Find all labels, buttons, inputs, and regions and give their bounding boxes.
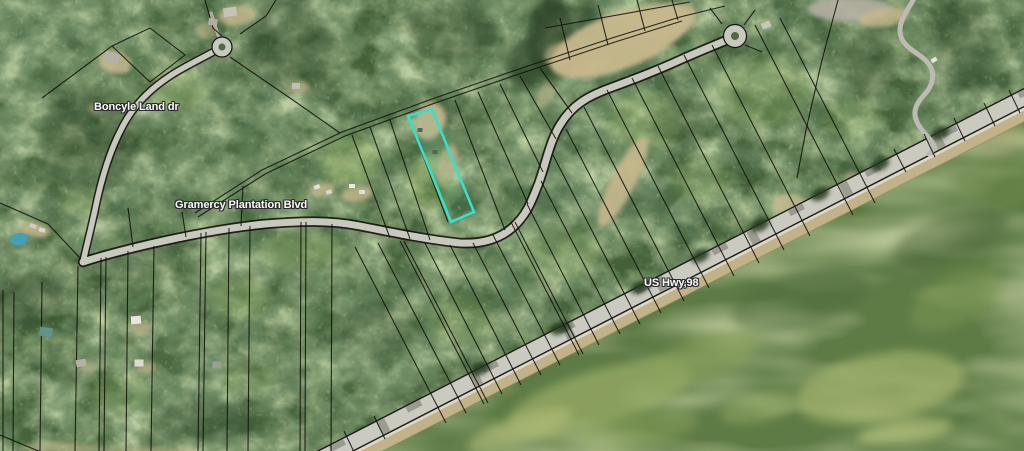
building [359, 190, 365, 194]
building [223, 7, 237, 18]
building [213, 362, 222, 369]
tree-shadow-patch [145, 400, 255, 444]
tree-shadow-patch [650, 96, 710, 144]
building [131, 316, 142, 325]
building [292, 83, 300, 89]
satellite-map[interactable] [0, 0, 1024, 451]
grass-patch [717, 58, 813, 126]
tree-shadow-patch [844, 24, 896, 100]
grass-patch [520, 226, 600, 278]
building [135, 360, 144, 367]
building [39, 327, 53, 338]
tree-shadow-patch [248, 0, 332, 93]
grass-patch [428, 298, 496, 346]
grass-patch [210, 280, 270, 320]
tree-shadow-patch [405, 0, 495, 60]
grass-patch [222, 364, 278, 396]
sand-clearing [88, 103, 102, 113]
grass-patch [820, 100, 880, 140]
tree-shadow-patch [42, 85, 138, 195]
tree-shadow-patch [340, 304, 420, 356]
grass-patch [670, 160, 730, 200]
grass-patch [260, 234, 340, 270]
building [349, 184, 355, 188]
map-canvas[interactable]: Boncyle Land dr Gramercy Plantation Blvd… [0, 0, 1024, 451]
tree-shadow-patch [937, 0, 993, 91]
